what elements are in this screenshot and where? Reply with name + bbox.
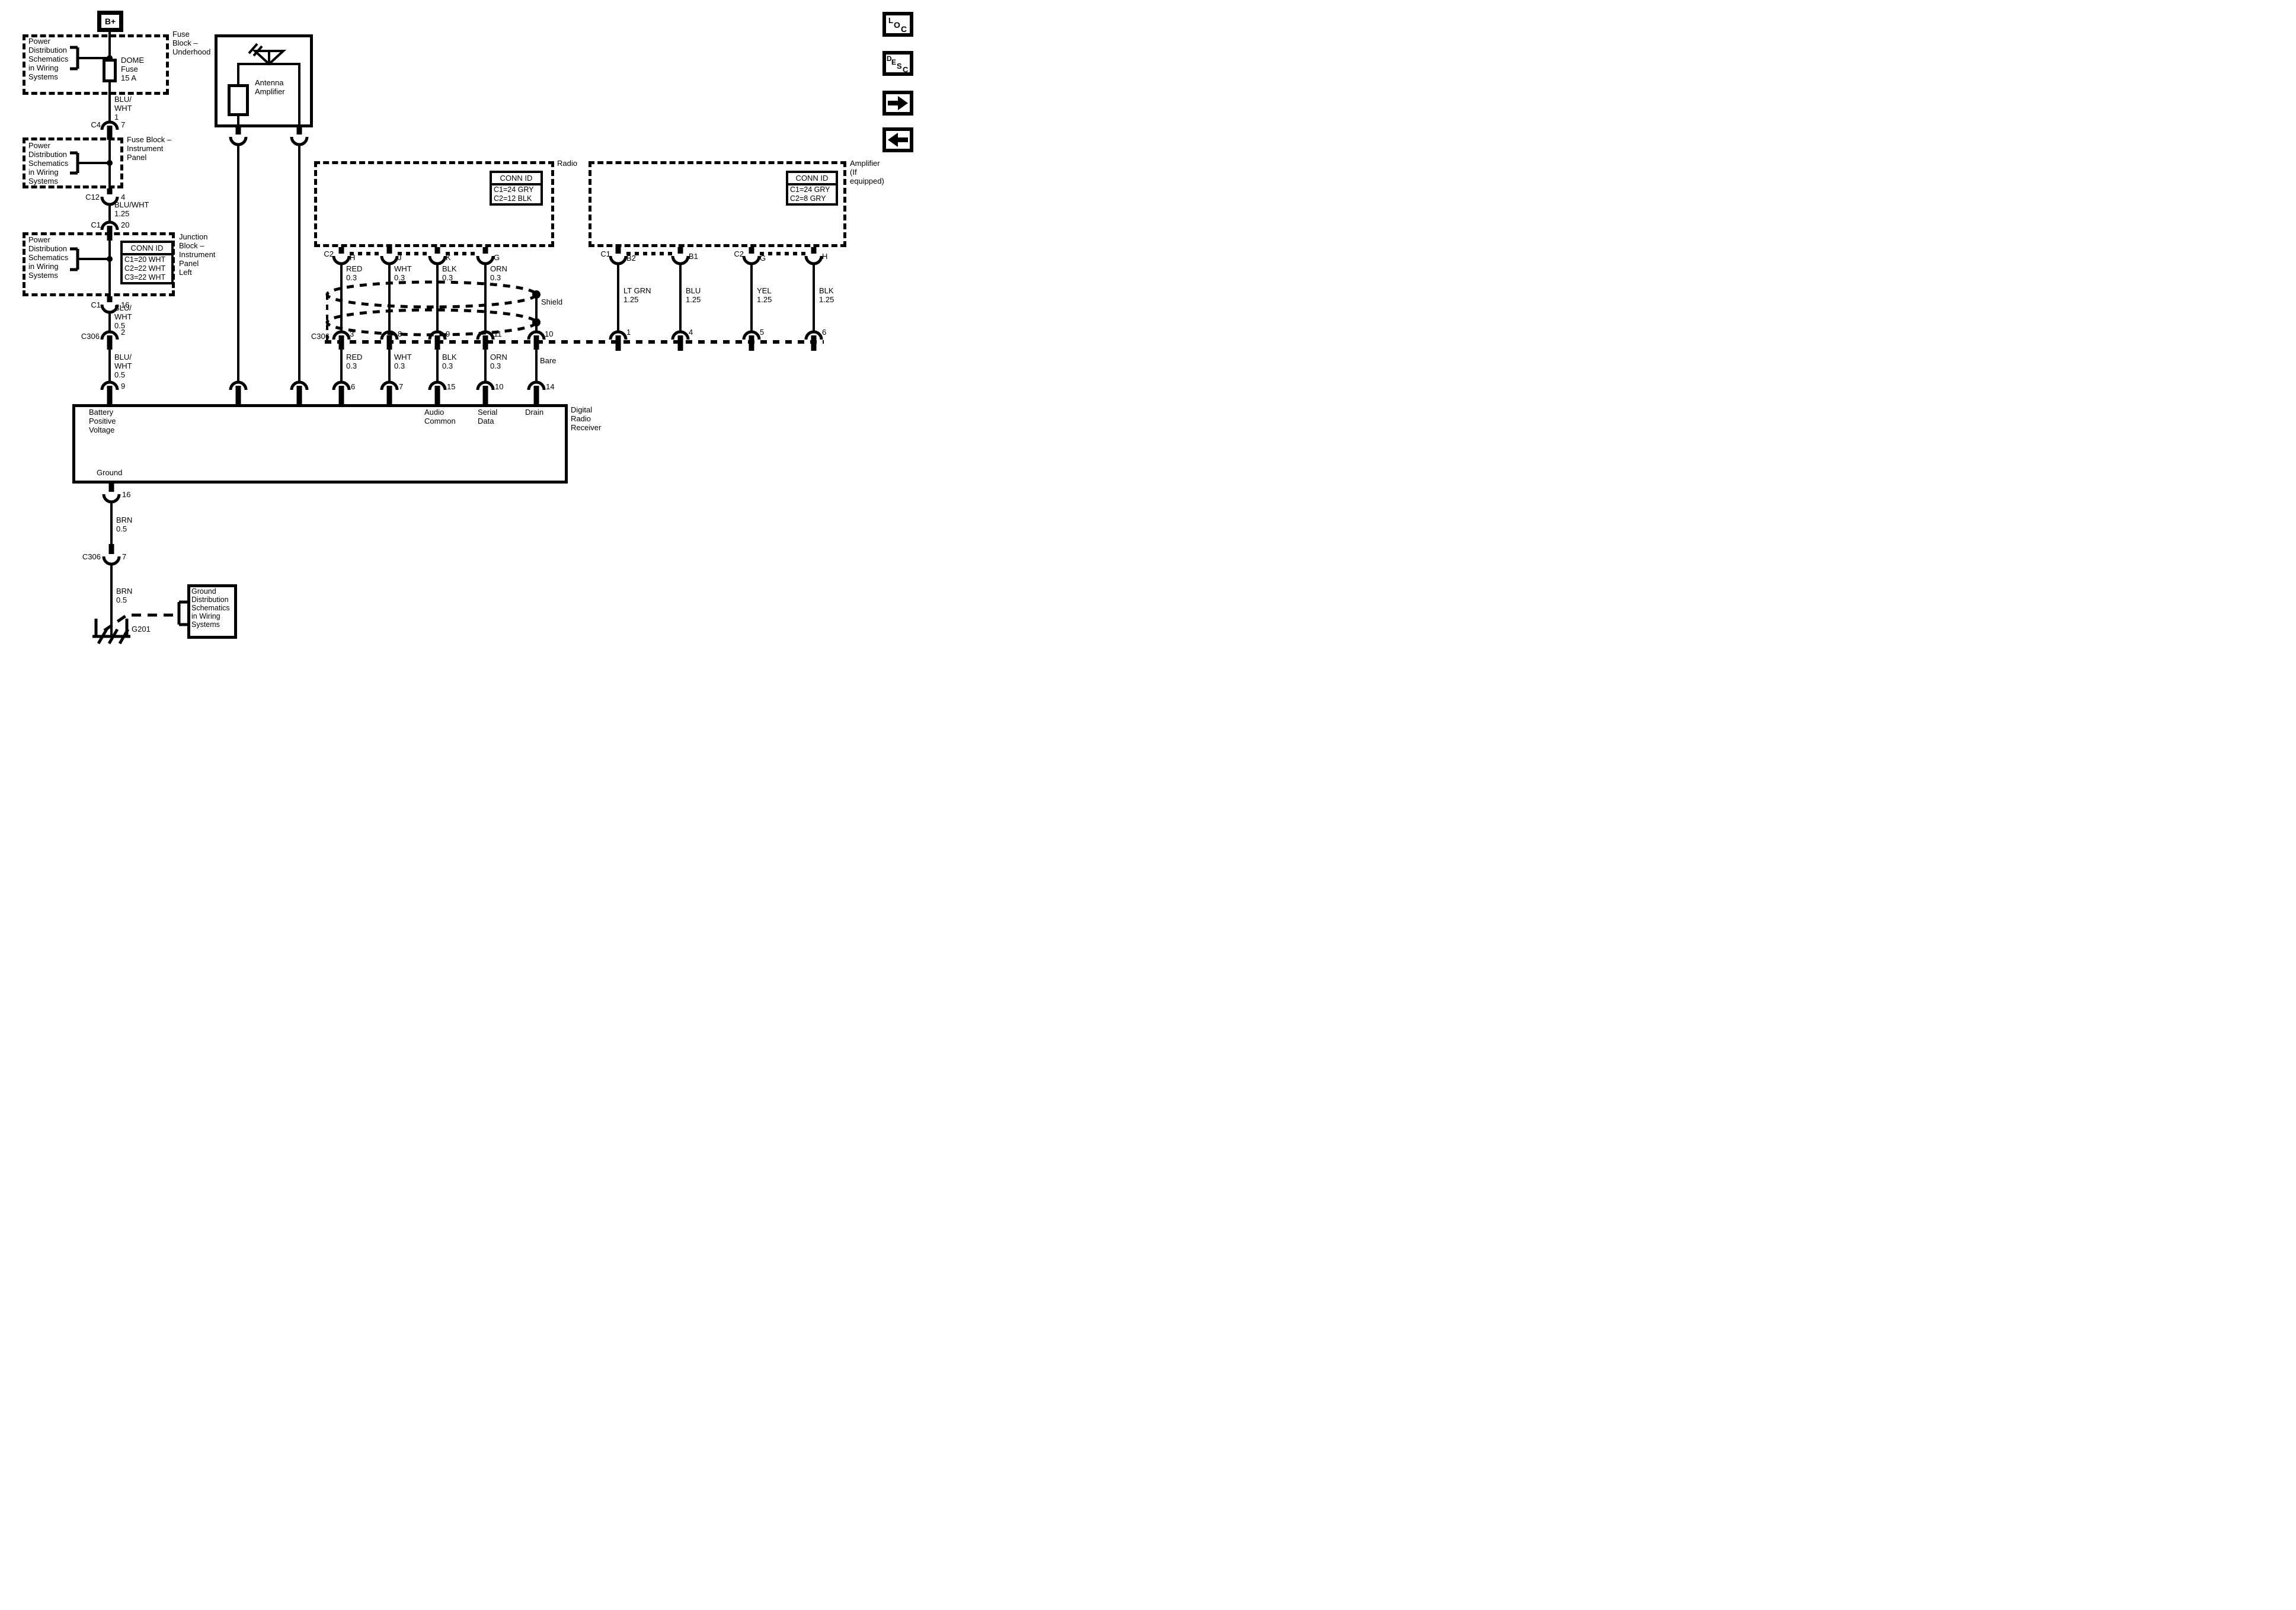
- desc-letter: C: [903, 65, 908, 74]
- arrow-left-icon: [886, 131, 910, 149]
- wire-label-blu: BLU 1.25: [686, 286, 701, 304]
- fuse-block-underhood-label: Fuse Block – Underhood: [172, 30, 210, 56]
- wire-label-blu-wht-05a: BLU/ WHT 0.5: [114, 303, 132, 330]
- ground-distribution-ref-label: Ground Distribution Schematics in Wiring…: [191, 587, 230, 629]
- pin-10-shield: 10: [545, 329, 553, 338]
- pin-H: H: [350, 253, 355, 262]
- pin-16-ground: 16: [122, 490, 130, 499]
- audio-common-label: Audio Common: [424, 408, 456, 425]
- wiring-diagram: B+ Power Distribution Schematics in Wiri…: [0, 0, 918, 644]
- ground-label: Ground: [97, 468, 122, 477]
- wire-label-brn-05b: BRN 0.5: [116, 587, 132, 604]
- dome-fuse-symbol: [103, 59, 117, 82]
- wire-label-blu-wht-1: BLU/ WHT 1: [114, 95, 132, 121]
- wire-label-bare: Bare: [540, 356, 556, 365]
- pin-6b: 6: [822, 328, 826, 337]
- battery-positive-voltage-label: Battery Positive Voltage: [89, 408, 116, 434]
- pin-3: 3: [350, 329, 354, 338]
- connector-c2-radio: C2: [316, 249, 334, 258]
- wire-label-brn-05a: BRN 0.5: [116, 516, 132, 533]
- connector-c4: C4: [78, 120, 101, 129]
- pin-7: 7: [121, 120, 125, 129]
- radio-conn-id-table: CONN ID C1=24 GRY C2=12 BLK: [490, 171, 543, 206]
- antenna-amplifier-label: Antenna Amplifier: [255, 78, 285, 96]
- wire-label-red-bottom: RED 0.3: [346, 353, 362, 370]
- junction-conn-id-table: CONN ID C1=20 WHT C2=22 WHT C3=22 WHT: [120, 241, 174, 284]
- connector-c1-in: C1: [78, 220, 101, 229]
- prev-page-button[interactable]: [882, 127, 913, 152]
- pin-15: 15: [447, 382, 455, 391]
- connector-c306-power: C306: [62, 332, 100, 341]
- desc-letter: E: [891, 58, 896, 66]
- wire-label-blu-wht-125: BLU/WHT 1.25: [114, 200, 149, 218]
- ground-id-label: G201: [132, 625, 151, 633]
- power-dist-ref-3: Power Distribution Schematics in Wiring …: [28, 235, 68, 280]
- pin-K: K: [446, 253, 451, 262]
- loc-letter: C: [901, 24, 907, 34]
- conn-id-title: CONN ID: [123, 243, 171, 255]
- antenna-amplifier-component: [228, 84, 249, 116]
- wire-label-blk-bottom: BLK 0.3: [442, 353, 457, 370]
- pin-B1: B1: [689, 252, 698, 261]
- shield-ellipses: [327, 282, 536, 335]
- power-dist-ref-1: Power Distribution Schematics in Wiring …: [28, 37, 68, 81]
- loc-button[interactable]: L O C: [882, 12, 913, 37]
- conn-id-row: C2=22 WHT: [123, 264, 171, 273]
- pin-8: 8: [398, 329, 402, 338]
- pin-J: J: [398, 253, 402, 262]
- pin-14: 14: [546, 382, 554, 391]
- wire-label-wht-top: WHT 0.3: [394, 264, 412, 282]
- junction-block-label: Junction Block – Instrument Panel Left: [179, 232, 215, 277]
- drain-label: Drain: [525, 408, 543, 417]
- pin-1: 1: [626, 328, 631, 337]
- desc-button[interactable]: D E S C: [882, 51, 913, 76]
- wire-label-blk-top: BLK 0.3: [442, 264, 457, 282]
- conn-id-title: CONN ID: [492, 173, 541, 185]
- pin-9: 9: [121, 382, 125, 391]
- fuse-block-ip-label: Fuse Block – Instrument Panel: [127, 135, 171, 162]
- pin-20: 20: [121, 220, 129, 229]
- next-page-button[interactable]: [882, 91, 913, 116]
- pin-B2: B2: [626, 254, 636, 263]
- connector-c1-amp: C1: [594, 249, 610, 258]
- conn-id-title: CONN ID: [788, 173, 836, 185]
- conn-id-row: C2=8 GRY: [788, 194, 836, 203]
- amplifier-conn-id-table: CONN ID C1=24 GRY C2=8 GRY: [786, 171, 838, 206]
- pin-10b: 10: [495, 382, 503, 391]
- pin-2: 2: [121, 328, 125, 337]
- wire-label-wht-bottom: WHT 0.3: [394, 353, 412, 370]
- shield-label: Shield: [541, 297, 562, 306]
- conn-id-row: C1=24 GRY: [492, 185, 541, 194]
- wire-label-yel: YEL 1.25: [757, 286, 772, 304]
- conn-id-row: C1=20 WHT: [123, 255, 171, 264]
- pin-5: 5: [760, 328, 764, 337]
- loc-letter: L: [888, 16, 893, 25]
- wire-label-red-top: RED 0.3: [346, 264, 362, 282]
- pin-G: G: [494, 253, 500, 262]
- wire-label-blk: BLK 1.25: [819, 286, 834, 304]
- serial-data-label: Serial Data: [478, 408, 497, 425]
- pin-H-amp: H: [822, 252, 827, 261]
- dome-fuse-label: DOME Fuse 15 A: [121, 56, 144, 82]
- loc-letter: O: [894, 20, 900, 30]
- pin-11: 11: [494, 329, 502, 338]
- digital-radio-receiver-label: Digital Radio Receiver: [571, 405, 601, 432]
- connector-c306-radio: C306: [295, 332, 330, 341]
- radio-label: Radio: [557, 159, 577, 168]
- connector-c2-amp: C2: [727, 249, 744, 258]
- power-dist-ref-2: Power Distribution Schematics in Wiring …: [28, 141, 68, 185]
- wiring-svg: [0, 0, 918, 644]
- desc-letter: S: [897, 62, 902, 71]
- amplifier-label: Amplifier (If equipped): [850, 159, 884, 185]
- conn-id-row: C1=24 GRY: [788, 185, 836, 194]
- pin-7-ground: 7: [122, 552, 126, 561]
- conn-id-row: C2=12 BLK: [492, 194, 541, 203]
- wire-label-orn-top: ORN 0.3: [490, 264, 507, 282]
- ground-icon: [92, 619, 130, 644]
- connector-c12: C12: [69, 193, 100, 201]
- connector-c1-out: C1: [78, 300, 101, 309]
- conn-id-row: C3=22 WHT: [123, 273, 171, 282]
- pin-7b: 7: [399, 382, 403, 391]
- pin-4b: 4: [689, 328, 693, 337]
- battery-positive-terminal: B+: [97, 11, 123, 32]
- arrow-right-icon: [886, 94, 910, 112]
- bplus-label: B+: [105, 17, 116, 26]
- wire-label-orn-bottom: ORN 0.3: [490, 353, 507, 370]
- connector-c306-ground: C306: [66, 552, 101, 561]
- pin-G-amp: G: [760, 254, 766, 263]
- pin-6: 6: [351, 382, 355, 391]
- wire-label-lt-grn: LT GRN 1.25: [623, 286, 651, 304]
- pin-9b: 9: [446, 329, 450, 338]
- wire-label-blu-wht-05b: BLU/ WHT 0.5: [114, 353, 132, 379]
